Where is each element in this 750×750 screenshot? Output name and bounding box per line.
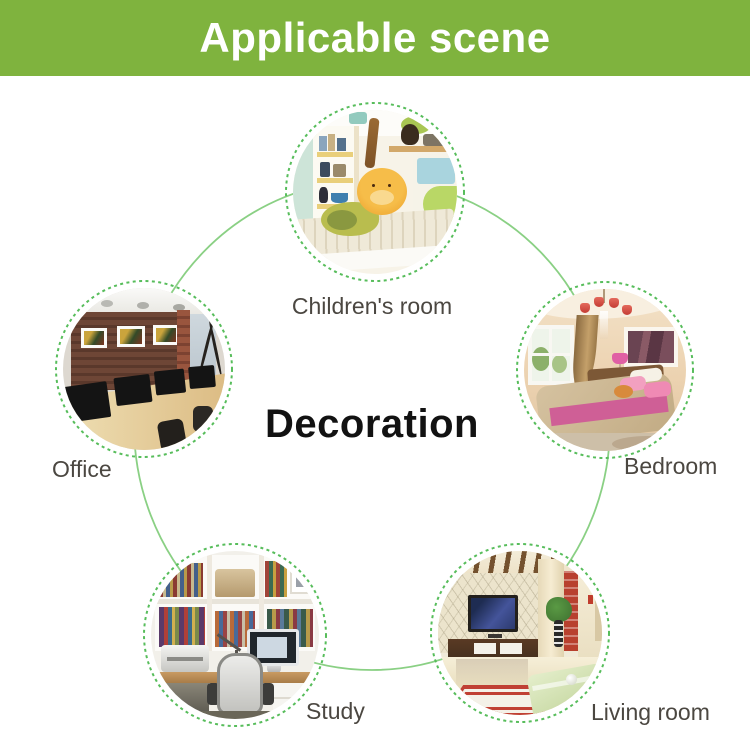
books <box>159 563 203 597</box>
tv-stand <box>488 634 502 638</box>
office-label: Office <box>52 456 112 483</box>
recessed-lights <box>101 300 113 307</box>
wall-shelf <box>389 146 453 152</box>
photo-frame-art <box>296 574 305 587</box>
chandelier-shade <box>580 303 590 313</box>
basket <box>215 569 255 597</box>
toys <box>423 134 447 146</box>
chandelier-shade <box>594 297 604 307</box>
pink-lamp <box>612 353 628 364</box>
center-title: Decoration <box>232 402 512 447</box>
cabinet-drawer <box>500 643 522 654</box>
picture-art <box>628 331 674 363</box>
book <box>328 134 335 151</box>
books <box>159 607 205 647</box>
elephant-plush-shade <box>327 210 357 230</box>
books <box>265 561 287 597</box>
bear-muzzle <box>370 190 394 205</box>
shelf <box>317 178 353 183</box>
wall-decal <box>349 112 367 124</box>
window-bar <box>531 353 571 356</box>
rug <box>612 436 684 451</box>
study-photo <box>151 551 319 719</box>
shelf-divider <box>207 555 212 651</box>
living-room-label: Living room <box>591 699 710 726</box>
penguin-toy <box>319 187 328 203</box>
framed-picture <box>153 325 179 345</box>
book <box>337 138 346 151</box>
printer-slot <box>167 657 203 661</box>
bedroom-label: Bedroom <box>624 453 717 480</box>
children-room-label: Children's room <box>252 293 492 320</box>
study-label: Study <box>306 698 365 725</box>
children-room-photo <box>293 110 457 274</box>
floor <box>151 711 319 719</box>
living-room-photo <box>438 551 602 715</box>
hall-door <box>595 581 602 641</box>
monitor <box>63 381 111 423</box>
monitor <box>188 365 216 389</box>
window-greenery <box>532 347 550 371</box>
pink-pillow <box>643 381 671 399</box>
blue-panel <box>417 158 455 184</box>
chandelier-crystals <box>600 311 608 339</box>
office-chair <box>157 418 188 450</box>
framed-picture <box>81 328 107 348</box>
plant <box>546 597 572 622</box>
monitor-window <box>257 637 287 658</box>
chandelier-shade <box>609 298 619 308</box>
cabinet-drawer <box>474 643 496 654</box>
office-chair <box>193 406 213 432</box>
office-chair <box>217 653 263 715</box>
tv <box>468 595 518 632</box>
bear-eyes <box>372 184 375 187</box>
shelf <box>317 152 353 157</box>
page: Applicable scene <box>0 0 750 750</box>
bedroom-photo <box>524 289 686 451</box>
toy <box>333 164 346 177</box>
monkey-plush <box>401 124 419 145</box>
framed-picture <box>117 326 145 347</box>
white-ball <box>566 674 577 685</box>
shelf-divider <box>155 599 315 604</box>
book <box>319 136 327 151</box>
window-greenery <box>552 355 567 373</box>
monitor <box>113 374 152 406</box>
striped-vase <box>554 620 563 647</box>
monitor <box>154 368 186 395</box>
chandelier-shade <box>622 305 632 315</box>
toy <box>320 162 330 177</box>
office-photo <box>63 288 225 450</box>
orange-pillow <box>614 385 633 398</box>
red-decor <box>588 595 593 604</box>
